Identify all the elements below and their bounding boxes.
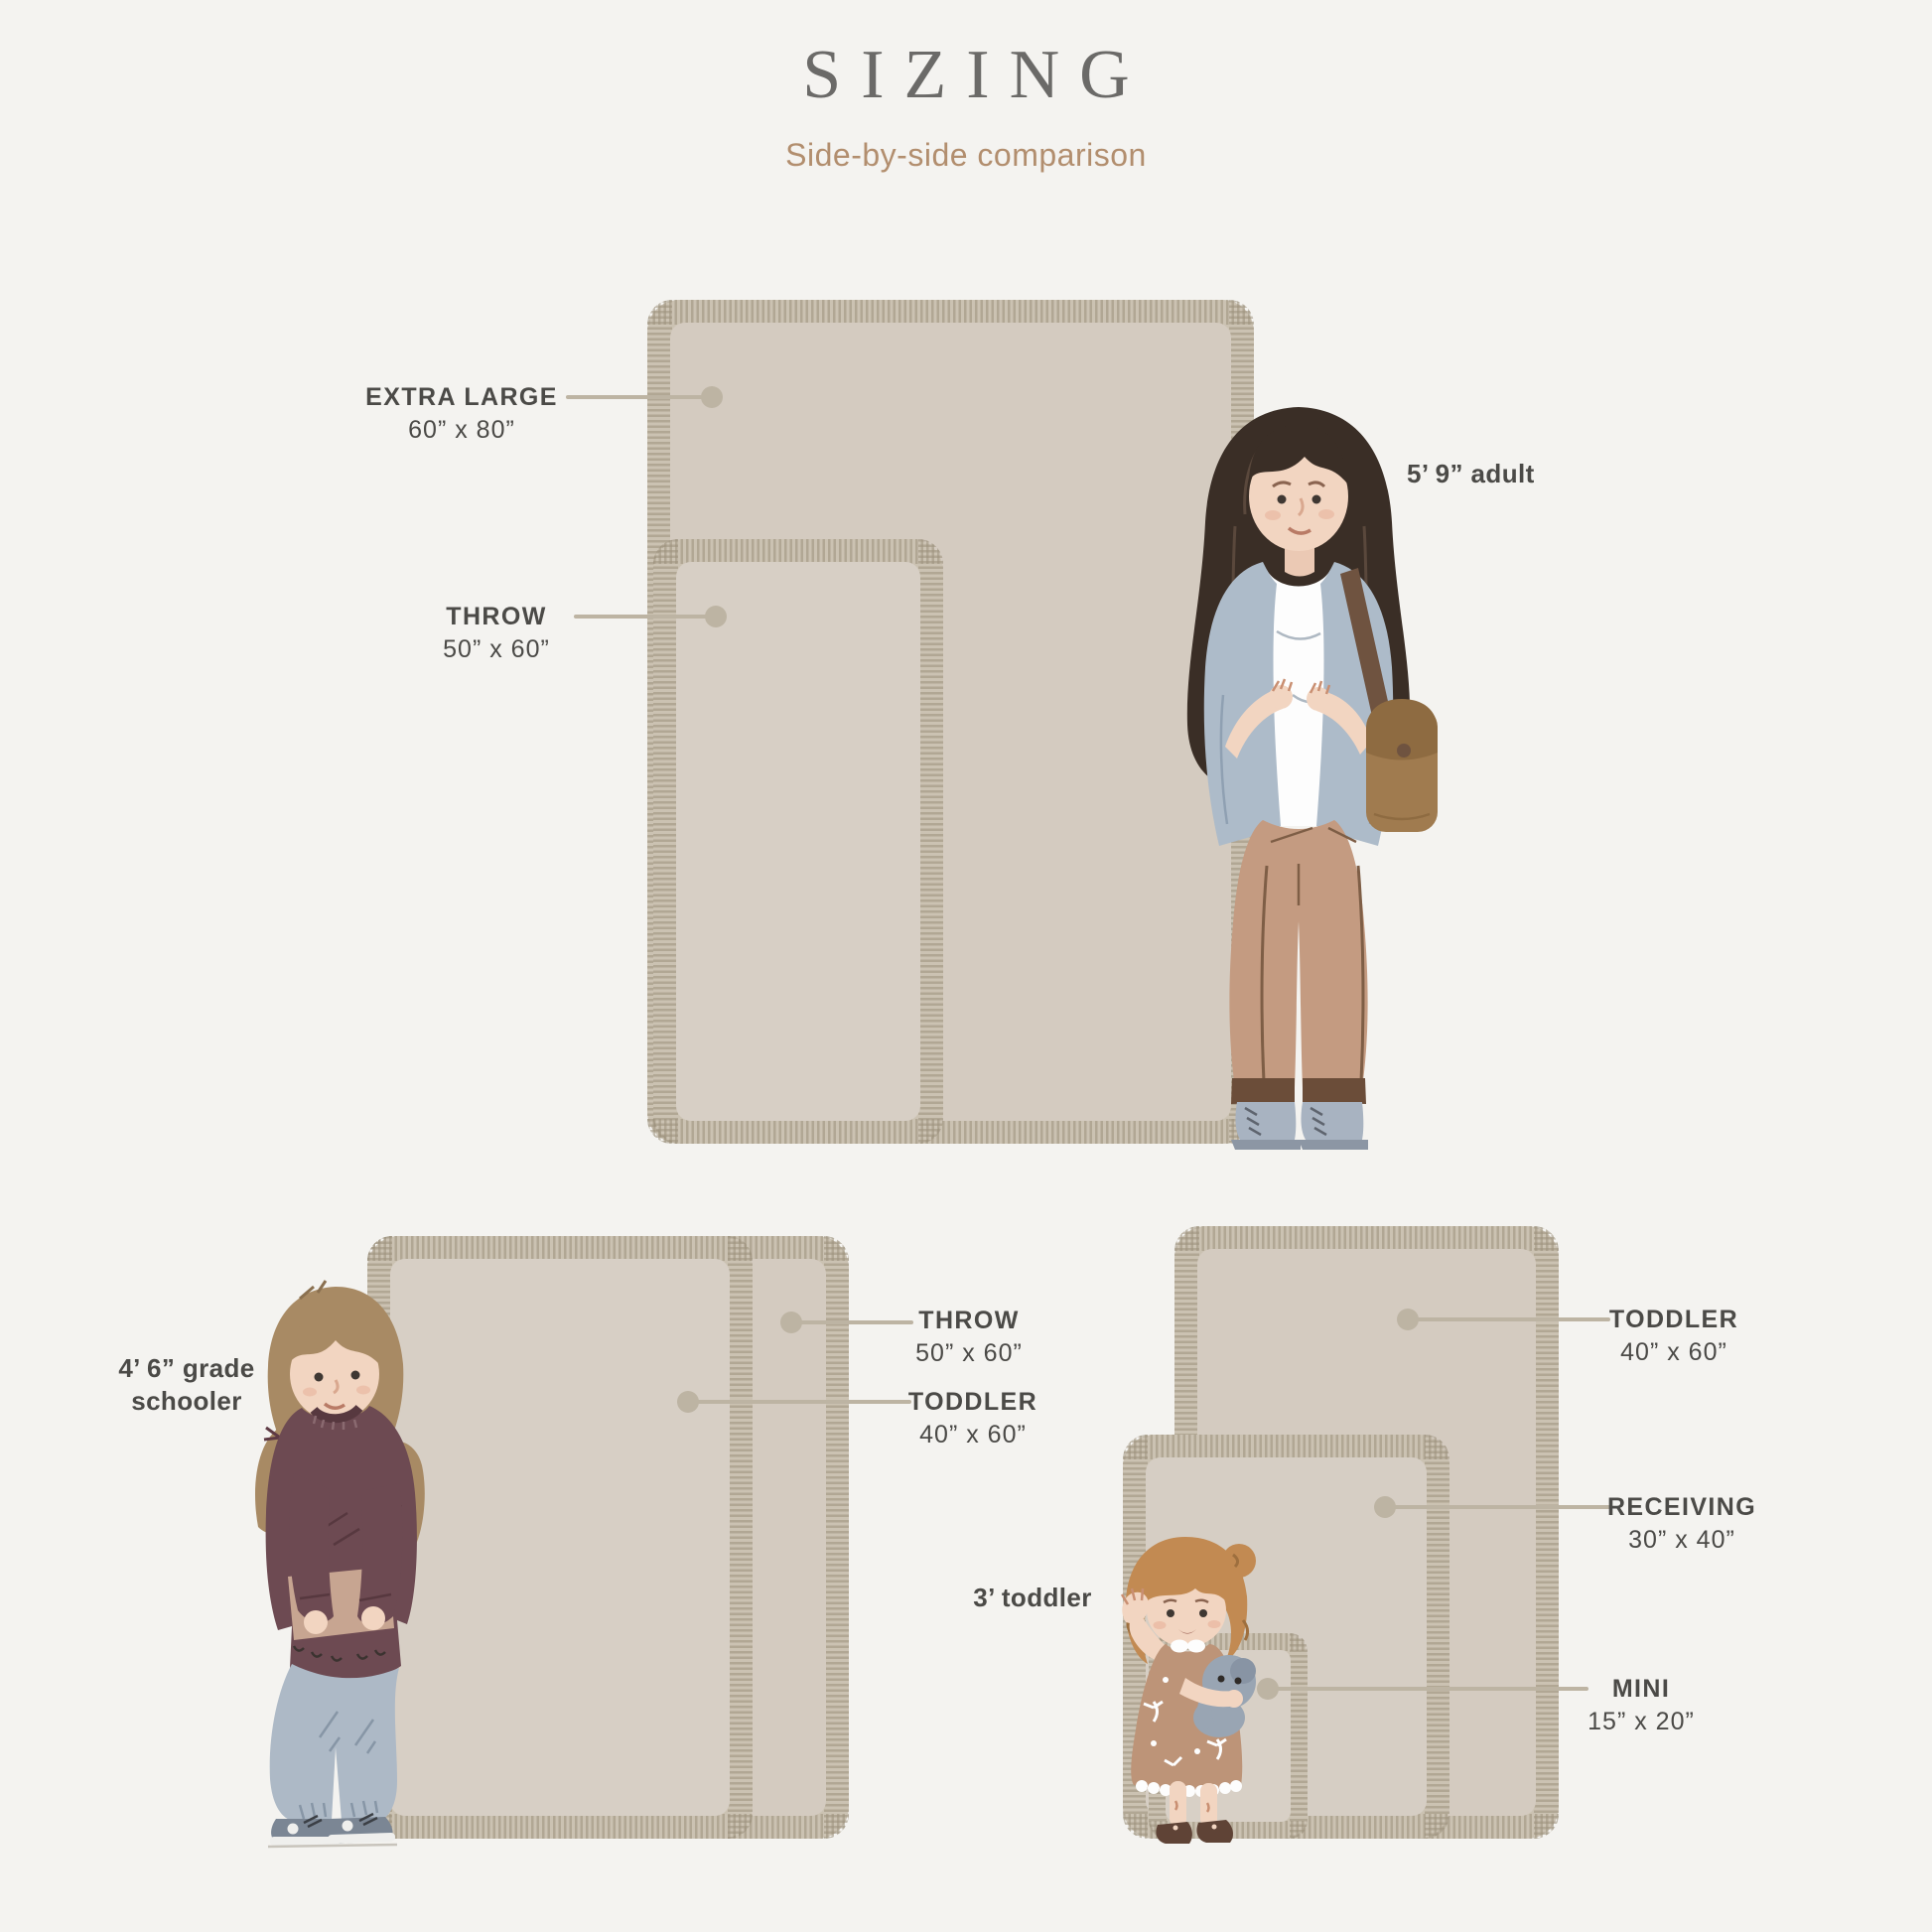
leader-dot-throw-bottom-left <box>780 1311 802 1333</box>
fringe-edge <box>647 300 1254 325</box>
fringe-edge <box>367 1236 753 1261</box>
page-subtitle: Side-by-side comparison <box>0 137 1932 174</box>
header: SIZING Side-by-side comparison <box>0 40 1932 174</box>
callout-extra-large-name: EXTRA LARGE <box>328 381 596 414</box>
fringe-edge <box>918 539 943 1144</box>
adult-figure-label: 5’ 9” adult <box>1407 458 1705 490</box>
callout-toddler-bl-name: TODDLER <box>864 1386 1082 1419</box>
girl-sneakers <box>268 1814 397 1847</box>
girl-pants <box>270 1664 399 1821</box>
callout-mini: MINI 15” x 20” <box>1532 1673 1750 1738</box>
grade-schooler-label-line2: schooler <box>77 1385 296 1418</box>
fringe-edge <box>728 1236 753 1839</box>
callout-toddler-br-name: TODDLER <box>1565 1304 1783 1336</box>
adult-boots <box>1231 1102 1368 1150</box>
toddler-shoes <box>1156 1820 1233 1844</box>
adult-pants <box>1229 820 1367 1104</box>
leader-dot-throw-top <box>705 606 727 627</box>
adult-figure-illustration <box>1144 397 1453 1154</box>
callout-throw-bl-name: THROW <box>860 1305 1078 1337</box>
leader-dot-receiving <box>1374 1496 1396 1518</box>
toddler-figure-illustration <box>1068 1531 1318 1851</box>
fringe-edge <box>653 539 943 564</box>
blanket-fill <box>676 562 920 1121</box>
leader-dot-toddler-bottom-right <box>1397 1309 1419 1330</box>
adult-bag <box>1366 699 1438 832</box>
toddler-figure-label: 3’ toddler <box>923 1582 1142 1614</box>
callout-extra-large: EXTRA LARGE 60” x 80” <box>328 381 596 447</box>
callout-throw-bottom-left: THROW 50” x 60” <box>860 1305 1078 1370</box>
fringe-edge <box>1425 1435 1449 1839</box>
grade-schooler-figure-label: 4’ 6” grade schooler <box>77 1352 296 1418</box>
callout-throw-top: THROW 50” x 60” <box>382 601 611 666</box>
callout-toddler-bottom-left: TODDLER 40” x 60” <box>864 1386 1082 1451</box>
callout-throw-bl-dims: 50” x 60” <box>860 1337 1078 1370</box>
callout-toddler-bl-dims: 40” x 60” <box>864 1419 1082 1451</box>
grade-schooler-label-line1: 4’ 6” grade <box>77 1352 296 1385</box>
callout-receiving: RECEIVING 30” x 40” <box>1563 1491 1801 1557</box>
callout-mini-dims: 15” x 20” <box>1532 1706 1750 1738</box>
fringe-edge <box>824 1236 849 1839</box>
callout-mini-name: MINI <box>1532 1673 1750 1706</box>
fringe-edge <box>653 1119 943 1144</box>
blanket-fill <box>390 1259 730 1816</box>
blanket-throw-top <box>653 539 943 1144</box>
callout-toddler-bottom-right: TODDLER 40” x 60” <box>1565 1304 1783 1369</box>
callout-toddler-br-dims: 40” x 60” <box>1565 1336 1783 1369</box>
callout-throw-top-name: THROW <box>382 601 611 633</box>
fringe-edge <box>653 539 678 1144</box>
leader-dot-mini <box>1257 1678 1279 1700</box>
callout-extra-large-dims: 60” x 80” <box>328 414 596 447</box>
leader-dot-toddler-bottom-left <box>677 1391 699 1413</box>
callout-receiving-dims: 30” x 40” <box>1563 1524 1801 1557</box>
fringe-edge <box>1174 1226 1559 1251</box>
page-title: SIZING <box>0 40 1932 111</box>
fringe-edge <box>1123 1435 1449 1459</box>
leader-dot-extra-large <box>701 386 723 408</box>
callout-receiving-name: RECEIVING <box>1563 1491 1801 1524</box>
callout-throw-top-dims: 50” x 60” <box>382 633 611 666</box>
sizing-infographic: SIZING Side-by-side comparison <box>0 0 1932 1932</box>
